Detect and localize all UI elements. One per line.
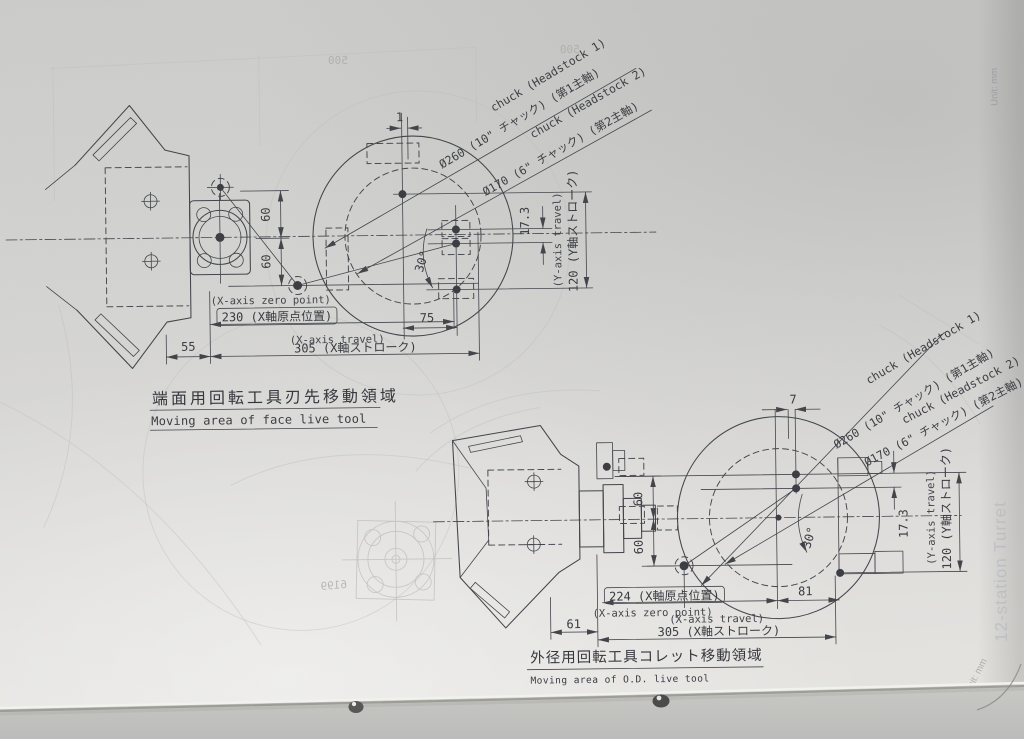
dim-60-upper-2: 60 — [631, 492, 645, 507]
dim-17-3-2: 17.3 — [896, 509, 910, 538]
dim-17-3: 17.3 — [518, 207, 532, 236]
dim-75: 75 — [420, 311, 435, 325]
dim-61: 61 — [566, 617, 581, 631]
dim-60-upper: 60 — [259, 207, 273, 222]
y-travel-ja: 120 (Y軸ストローク) — [565, 169, 580, 292]
title-1-ja: 端面用回転工具刃先移動領域 — [152, 386, 399, 408]
x-travel-ja-2: 305 (X軸ストローク) — [657, 624, 780, 639]
photographed-manual-page: 500 500 6199 — [0, 0, 1024, 739]
next-page-tab-text: 12-station Turret — [990, 501, 1011, 642]
y-travel-en: (Y-axis travel) — [551, 192, 564, 287]
dim-55: 55 — [181, 340, 196, 354]
dim-7: 7 — [789, 392, 796, 406]
title-1-en: Moving area of face live tool — [151, 412, 366, 429]
y-travel-ja-2: 120 (Y軸ストローク) — [939, 447, 954, 570]
paper-texture — [0, 0, 1024, 712]
title-2-ja: 外径用回転工具コレット移動領域 — [530, 647, 763, 667]
dim-60-lower-2: 60 — [632, 540, 646, 555]
binder-stud-right — [653, 695, 670, 708]
ghost-number: 6199 — [320, 578, 347, 593]
title-2-en: Moving area of O.D. live tool — [530, 673, 709, 686]
y-travel-en-2: (Y-axis travel) — [925, 470, 938, 565]
binder-stud-left — [349, 701, 364, 713]
dim-1: 1 — [396, 110, 403, 124]
x-zero-ja: 230 (X軸原点位置) — [222, 308, 333, 324]
dim-60-lower: 60 — [259, 254, 273, 269]
x-travel-ja: 305 (X軸ストローク) — [294, 340, 417, 355]
ghost-dim-500-a: 500 — [328, 54, 348, 67]
dim-81: 81 — [798, 584, 813, 598]
x-zero-en: (X-axis zero point) — [211, 294, 331, 307]
top-right-unit-note: Unit: mm — [989, 68, 1000, 106]
